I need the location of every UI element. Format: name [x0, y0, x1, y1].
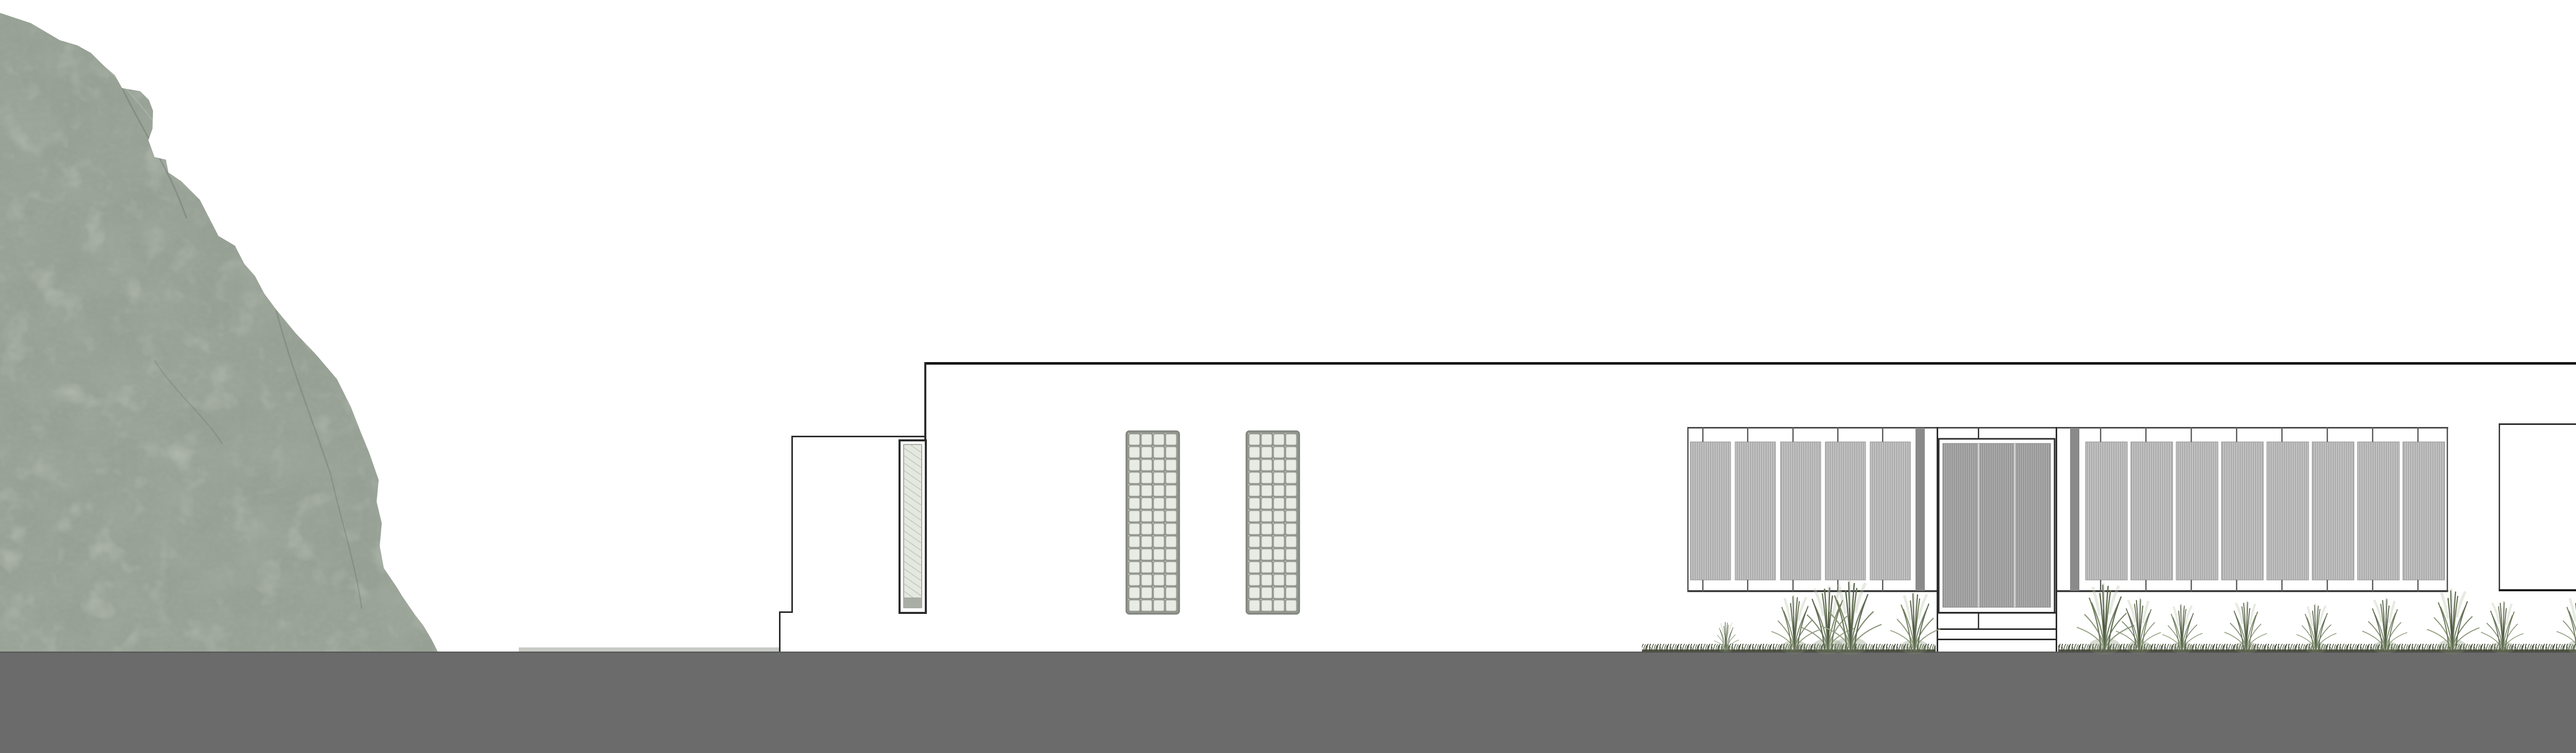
louver-band [1687, 427, 2448, 592]
entry-bay-right-wall [2056, 427, 2057, 652]
wing-left-wall [791, 436, 793, 612]
band-bottom-line-left [1687, 590, 1937, 592]
front-door [1943, 443, 2050, 607]
terrace-step-strip [519, 647, 779, 652]
side-window-hatch [904, 444, 922, 608]
side-window-sill [904, 597, 922, 608]
band-left-frame [1687, 427, 1689, 592]
door-seam-1 [1978, 443, 1979, 607]
louver-panels-right [2086, 442, 2445, 580]
ground-band [0, 647, 2576, 753]
front-door-leaf [1943, 443, 2050, 607]
side-window [900, 440, 926, 613]
pilaster-strip-left [1916, 428, 1925, 591]
elevation-scene: MARINA VELLA ARQUITECTURA | URBANISMO [0, 0, 2576, 753]
louver-panels-left [1690, 442, 1910, 580]
roof-line [924, 362, 2576, 365]
rock-outcrop [0, 0, 464, 664]
transom-tick [1978, 429, 1979, 439]
wing-top-line [791, 436, 926, 437]
breeze-block-screen-2 [1246, 431, 1299, 614]
band-right-frame [2447, 427, 2448, 592]
house-elevation [779, 362, 2576, 652]
left-wall-line [924, 362, 926, 440]
entry-bay [1937, 427, 2057, 652]
breeze-block-screen-1 [1126, 431, 1179, 614]
wing-base-jog [779, 611, 793, 613]
pilaster-strip-right [2070, 428, 2079, 591]
door-seam-2 [2014, 443, 2015, 607]
wing-base-wall [779, 611, 781, 652]
band-top-line [1687, 427, 2448, 429]
rock-texture [0, 0, 464, 664]
elevation-drawing-canvas: MARINA VELLA ARQUITECTURA | URBANISMO [0, 0, 2576, 753]
right-annex-box [2499, 423, 2576, 591]
